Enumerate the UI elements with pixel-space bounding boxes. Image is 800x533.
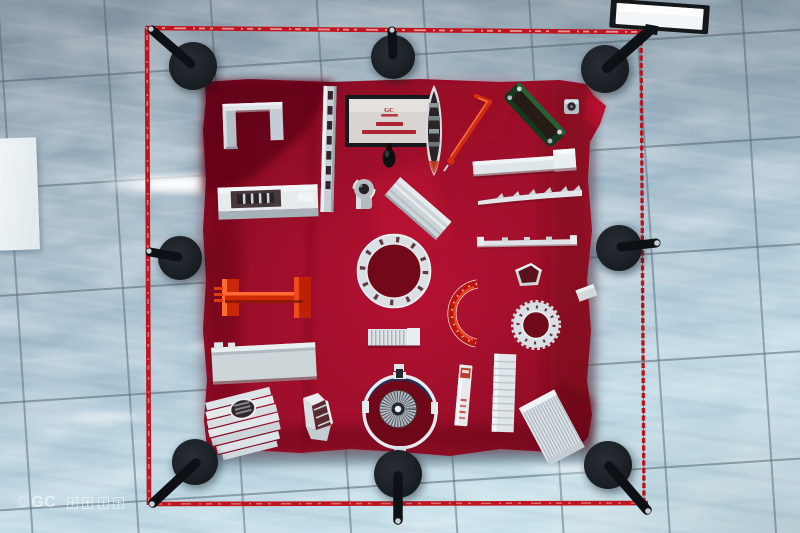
svg-text:GC: GC <box>384 107 394 114</box>
